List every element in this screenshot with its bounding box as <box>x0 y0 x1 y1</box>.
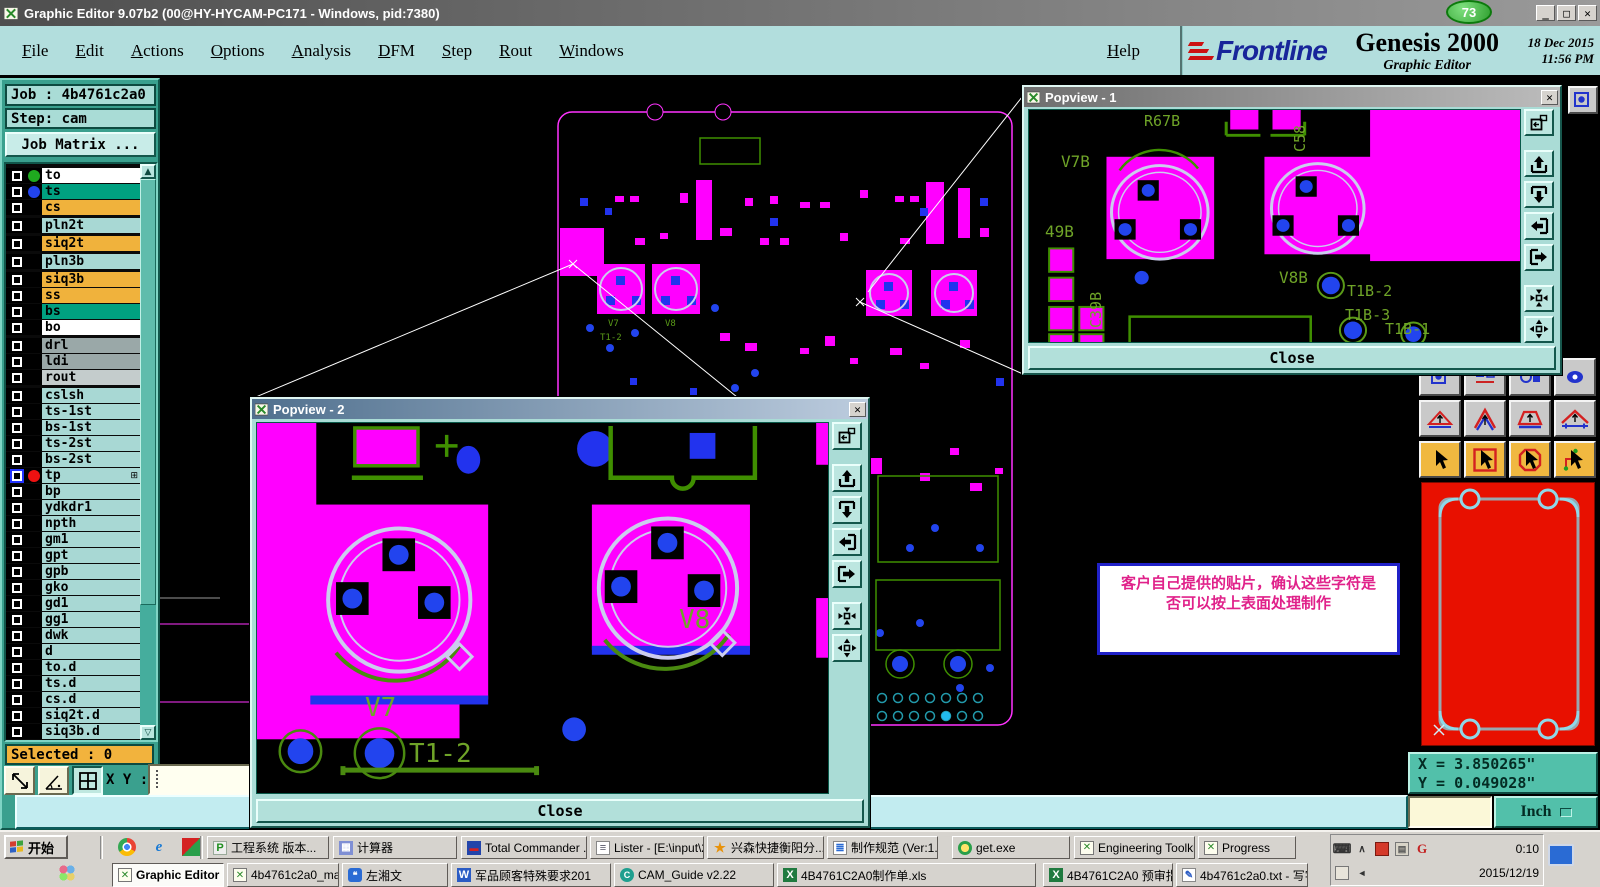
pan-down-icon[interactable] <box>832 496 862 524</box>
popview-1-title: Popview - 1 <box>1045 90 1536 105</box>
product-title: Genesis 2000 <box>1335 28 1520 58</box>
popview-1-canvas[interactable]: R67B C58 V7B 49B C39B V8B T1B-2 T1B-3 T1… <box>1028 109 1521 343</box>
layer-row[interactable]: ts <box>6 184 140 199</box>
layer-checkbox[interactable] <box>12 471 22 481</box>
layer-color-dot <box>28 470 40 482</box>
job-sidebar: Job : 4b4761c2a0 Step: cam Job Matrix ..… <box>0 78 160 830</box>
layer-checkbox[interactable] <box>12 391 22 401</box>
popview-icon <box>1027 92 1040 103</box>
tray-date: 2015/12/19 <box>1479 866 1539 880</box>
menubar: File Edit Actions Options Analysis DFM S… <box>0 26 1600 78</box>
layer-name[interactable]: tp⊞ <box>42 468 140 483</box>
customer-note: 客户自己提供的贴片，确认这些字符是 否可以按上表面处理制作 <box>1097 563 1400 655</box>
job-matrix-button[interactable]: Job Matrix ... <box>5 132 156 157</box>
layer-checkbox[interactable] <box>12 203 22 213</box>
layer-checkbox[interactable] <box>12 535 22 545</box>
task-graphic-editor[interactable]: Graphic Editor 9.07b2 <box>112 863 224 887</box>
task-word-doc[interactable]: 军品顾客特殊要求201 <box>451 863 611 887</box>
document-icon <box>596 841 610 855</box>
brand-panel: Frontline Genesis 2000 Graphic Editor 18… <box>1180 26 1600 75</box>
pan-left-icon[interactable] <box>832 528 862 556</box>
silk-label: V8 <box>679 605 710 635</box>
document-icon <box>833 841 847 855</box>
pan-right-icon[interactable] <box>832 560 862 588</box>
triangle-tool-3-icon[interactable] <box>1509 400 1551 437</box>
grid-tool-button[interactable] <box>72 766 103 795</box>
date-label: 18 Dec 2015 <box>1528 35 1594 51</box>
volume-icon[interactable] <box>1355 866 1369 880</box>
cursor-coordinates: X = 3.850265" Y = 0.049028" <box>1408 752 1598 794</box>
popview-1-close-button[interactable]: Close <box>1028 346 1556 370</box>
layer-row[interactable]: bs-2st <box>6 452 140 467</box>
layer-checkbox[interactable] <box>12 727 22 737</box>
menu-help[interactable]: Help <box>1107 41 1140 61</box>
start-button[interactable]: 开始 <box>4 835 68 859</box>
select-net-icon[interactable] <box>1554 441 1596 478</box>
quicklaunch-app-icon[interactable] <box>182 838 200 856</box>
layer-name[interactable]: ldi <box>42 354 140 369</box>
note-line-2: 否可以按上表面处理制作 <box>1100 594 1397 614</box>
task-lister[interactable]: Lister - [E:\input\2... <box>590 836 704 859</box>
layer-name[interactable]: to.d <box>42 660 140 675</box>
silk-label: 49B <box>1045 222 1074 241</box>
layer-name[interactable]: bs-1st <box>42 420 140 435</box>
menu-rout[interactable]: Rout <box>499 41 532 61</box>
layer-name[interactable]: cslsh <box>42 388 140 403</box>
layer-row[interactable]: rout <box>6 370 140 385</box>
pan-up-icon[interactable] <box>832 464 862 492</box>
popview-1-titlebar[interactable]: Popview - 1 ✕ <box>1024 87 1560 107</box>
tray-clock: 0:10 <box>1516 842 1539 856</box>
layer-row[interactable]: tp⊞ <box>6 468 140 483</box>
clipboard-icon[interactable] <box>1395 842 1409 856</box>
layer-checkbox[interactable] <box>12 341 22 351</box>
layer-checkbox[interactable] <box>12 599 22 609</box>
layer-name[interactable]: gm1 <box>42 532 140 547</box>
layer-row[interactable]: dwk <box>6 628 140 643</box>
units-button[interactable]: Inch <box>1494 796 1598 828</box>
layer-checkbox[interactable] <box>12 307 22 317</box>
note-line-1: 客户自己提供的贴片，确认这些字符是 <box>1100 574 1397 594</box>
layer-checkbox[interactable] <box>12 423 22 433</box>
svg-text:V8: V8 <box>665 319 676 329</box>
layer-row[interactable]: siq3b.d <box>6 724 140 739</box>
layer-checkbox[interactable] <box>12 503 22 513</box>
layer-row[interactable]: cs <box>6 200 140 215</box>
task-chat[interactable]: 左湘文 <box>342 863 448 887</box>
layer-checkbox[interactable] <box>12 171 22 181</box>
layer-checkbox[interactable] <box>12 407 22 417</box>
select-frame-icon[interactable] <box>1464 441 1506 478</box>
window-titlebar[interactable]: Graphic Editor 9.07b2 (00@HY-HYCAM-PC171… <box>0 0 1600 26</box>
task-cam-guide[interactable]: CAM_Guide v2.22 <box>614 863 774 887</box>
pan-down-icon[interactable] <box>1524 181 1554 208</box>
layer-row[interactable]: to <box>6 168 140 183</box>
layer-row[interactable]: d <box>6 644 140 659</box>
task-calculator[interactable]: 计算器 <box>333 836 457 859</box>
layer-row[interactable]: siq3b <box>6 272 140 287</box>
layer-row[interactable]: cslsh <box>6 388 140 403</box>
layer-row[interactable]: bs <box>6 304 140 319</box>
layer-row[interactable]: bs-1st <box>6 420 140 435</box>
layer-name[interactable]: ts <box>42 184 140 199</box>
layer-checkbox[interactable] <box>12 679 22 689</box>
layer-row[interactable]: drl <box>6 338 140 353</box>
silk-label: V7 <box>365 693 396 723</box>
layer-checkbox[interactable] <box>12 239 22 249</box>
task-excel-worksheet[interactable]: 4B4761C2A0制作单.xls <box>777 863 1036 887</box>
popview-2-artwork <box>257 423 828 793</box>
keyboard-icon[interactable] <box>1335 842 1349 856</box>
tray-g-icon[interactable] <box>1415 842 1429 856</box>
layer-name[interactable]: bp <box>42 484 140 499</box>
popview-2-title: Popview - 2 <box>273 402 844 417</box>
layer-name[interactable]: gd1 <box>42 596 140 611</box>
layer-name[interactable]: bs-2st <box>42 452 140 467</box>
text-caret <box>156 770 158 789</box>
layer-row[interactable]: ts-1st <box>6 404 140 419</box>
silk-label: R67B <box>1144 112 1180 130</box>
calculator-icon <box>339 841 353 855</box>
zoom-contract-icon[interactable] <box>832 602 862 630</box>
layer-name[interactable]: ts.d <box>42 676 140 691</box>
layer-row[interactable]: gpb <box>6 564 140 579</box>
app-icon <box>958 841 972 855</box>
layer-name[interactable]: gko <box>42 580 140 595</box>
popview-2-toolbar <box>832 422 864 794</box>
menu-options[interactable]: Options <box>211 41 265 61</box>
collapse-icon[interactable] <box>1355 842 1369 856</box>
layer-row[interactable]: gm1 <box>6 532 140 547</box>
popview-2-close-icon[interactable]: ✕ <box>849 402 866 417</box>
excel-icon <box>783 868 797 882</box>
app-icon <box>620 868 634 882</box>
select-polygon-icon[interactable] <box>1509 441 1551 478</box>
layer-name[interactable]: siq2t <box>42 236 140 251</box>
window-title: Graphic Editor 9.07b2 (00@HY-HYCAM-PC171… <box>24 6 440 21</box>
task-get-exe[interactable]: get.exe <box>952 836 1070 859</box>
layer-name[interactable]: rout <box>42 370 140 385</box>
scroll-thumb[interactable] <box>140 179 156 605</box>
triangle-tool-4-icon[interactable] <box>1554 400 1596 437</box>
layer-name[interactable]: siq3b.d <box>42 724 140 739</box>
minimize-button[interactable]: _ <box>1536 5 1555 21</box>
menu-windows[interactable]: Windows <box>559 41 624 61</box>
job-label: Job : 4b4761c2a0 <box>5 84 156 106</box>
layer-name[interactable]: bs <box>42 304 140 319</box>
layer-checkbox[interactable] <box>12 439 22 449</box>
maximize-button[interactable]: □ <box>1557 5 1576 21</box>
tray-window-icon[interactable] <box>1335 866 1349 880</box>
step-label: Step: cam <box>5 108 156 129</box>
xy-label: X Y : <box>106 772 148 788</box>
layer-color-dot <box>28 186 40 198</box>
task-total-commander[interactable]: Total Commander ... <box>461 836 587 859</box>
layer-name[interactable]: ts-1st <box>42 404 140 419</box>
menu-dfm[interactable]: DFM <box>378 41 415 61</box>
layer-row[interactable]: gpt <box>6 548 140 563</box>
chrome-icon[interactable] <box>118 838 136 856</box>
notification-badge: 73 <box>1446 0 1492 24</box>
layer-row[interactable]: cs.d <box>6 692 140 707</box>
popview-1-toolbar <box>1524 109 1556 343</box>
windows-flag-icon <box>10 840 24 854</box>
layer-name[interactable]: gg1 <box>42 612 140 627</box>
layer-checkbox[interactable] <box>12 711 22 721</box>
layer-checkbox[interactable] <box>12 221 22 231</box>
window-copy-icon[interactable] <box>832 422 862 450</box>
silk-label: C39B <box>1087 292 1105 328</box>
layer-checkbox[interactable] <box>12 357 22 367</box>
star-icon <box>713 841 727 855</box>
layer-name[interactable]: gpb <box>42 564 140 579</box>
layer-checkbox[interactable] <box>12 695 22 705</box>
layer-name[interactable]: gpt <box>42 548 140 563</box>
menu-items: File Edit Actions Options Analysis DFM S… <box>0 26 1107 75</box>
window-copy-icon[interactable] <box>1524 109 1554 136</box>
silk-label: T1B-2 <box>1347 282 1392 300</box>
scroll-up-icon[interactable]: ▲ <box>140 164 156 179</box>
layer-name[interactable]: ts-2st <box>42 436 140 451</box>
zoom-expand-icon[interactable] <box>1524 316 1554 343</box>
layer-checkbox[interactable] <box>12 567 22 577</box>
pan-up-icon[interactable] <box>1524 150 1554 177</box>
triangle-tool-2-icon[interactable] <box>1464 400 1506 437</box>
layer-row[interactable]: gko <box>6 580 140 595</box>
menu-file[interactable]: File <box>22 41 48 61</box>
layer-color-dot <box>28 170 40 182</box>
panel-window-icon[interactable] <box>1568 86 1598 114</box>
layer-name[interactable]: siq3b <box>42 272 140 287</box>
layer-checkbox[interactable] <box>12 519 22 529</box>
layer-panel: to ts cs pln2t siq2t pln3b siq3b ss <box>4 162 158 742</box>
word-icon <box>457 868 471 882</box>
app-icon <box>213 841 227 855</box>
layer-name[interactable]: d <box>42 644 140 659</box>
ie-icon[interactable] <box>150 838 168 856</box>
app-icon <box>233 868 247 882</box>
select-cursor-icon[interactable] <box>1419 441 1461 478</box>
measure-tool-button[interactable] <box>38 766 69 795</box>
tray-app-icon[interactable] <box>1375 842 1389 856</box>
profile-preview <box>1421 482 1595 746</box>
layer-checkbox[interactable] <box>12 631 22 641</box>
app-icon <box>1204 841 1218 855</box>
pan-right-icon[interactable] <box>1524 244 1554 271</box>
layer-checkbox[interactable] <box>12 647 22 657</box>
silk-label: T1-2 <box>409 739 472 769</box>
popview-1-close-icon[interactable]: ✕ <box>1541 90 1558 105</box>
product-subtitle: Graphic Editor <box>1335 58 1520 74</box>
menu-actions[interactable]: Actions <box>131 41 184 61</box>
layer-row[interactable]: siq2t.d <box>6 708 140 723</box>
silk-label: V7B <box>1061 152 1090 171</box>
layer-checkbox[interactable] <box>12 551 22 561</box>
task-spec-doc[interactable]: 制作规范 (Ver:1.... <box>827 836 938 859</box>
popview-2-titlebar[interactable]: Popview - 2 ✕ <box>252 399 868 419</box>
layer-name[interactable]: to <box>42 168 140 183</box>
layer-row[interactable]: ydkdr1 <box>6 500 140 515</box>
popview-1-window[interactable]: Popview - 1 ✕ <box>1022 85 1562 375</box>
triangle-tool-1-icon[interactable] <box>1419 400 1461 437</box>
layer-checkbox[interactable] <box>12 487 22 497</box>
silk-label: T1B-1 <box>1385 320 1430 338</box>
display-tray-icon[interactable] <box>1548 844 1574 866</box>
task-engineering-system[interactable]: 工程系统 版本... <box>207 836 329 859</box>
layer-checkbox[interactable] <box>12 373 22 383</box>
coord-y: Y = 0.049028" <box>1418 774 1596 793</box>
taskbar: 开始 工程系统 版本... 计算器 Total Commander ... Li… <box>0 830 1600 887</box>
layer-name[interactable]: dwk <box>42 628 140 643</box>
layer-row[interactable]: bp <box>6 484 140 499</box>
layer-name[interactable]: npth <box>42 516 140 531</box>
layer-row[interactable]: ldi <box>6 354 140 369</box>
menu-analysis[interactable]: Analysis <box>292 41 352 61</box>
app-icon <box>467 841 481 855</box>
layer-checkbox[interactable] <box>12 257 22 267</box>
layer-checkbox[interactable] <box>12 291 22 301</box>
layer-row[interactable]: pln3b <box>6 254 140 269</box>
close-button[interactable]: ✕ <box>1578 5 1597 21</box>
menu-step[interactable]: Step <box>442 41 472 61</box>
layer-row[interactable]: npth <box>6 516 140 531</box>
app-icon <box>1080 841 1094 855</box>
layer-row[interactable]: gd1 <box>6 596 140 611</box>
layer-row[interactable]: ss <box>6 288 140 303</box>
zoom-contract-icon[interactable] <box>1524 285 1554 312</box>
layer-row[interactable]: ts-2st <box>6 436 140 451</box>
layer-checkbox[interactable] <box>12 187 22 197</box>
pan-left-icon[interactable] <box>1524 212 1554 239</box>
layer-row[interactable]: gg1 <box>6 612 140 627</box>
layer-checkbox[interactable] <box>12 275 22 285</box>
units-dropdown-icon <box>1560 808 1572 817</box>
silk-label: C58 <box>1291 125 1309 152</box>
taskbar-separator <box>200 836 203 859</box>
task-main-window[interactable]: 4b4761c2a0_main_ga... <box>227 863 339 887</box>
layer-checkbox[interactable] <box>12 323 22 333</box>
popview-2-canvas[interactable]: V7 V8 T1-2 <box>256 422 829 794</box>
scroll-down-icon[interactable]: ▽ <box>140 725 156 740</box>
chat-icon <box>348 868 362 882</box>
popview-2-window[interactable]: Popview - 2 ✕ <box>250 397 870 828</box>
time-label: 11:56 PM <box>1528 51 1594 67</box>
layer-row[interactable]: to.d <box>6 660 140 675</box>
menu-edit[interactable]: Edit <box>75 41 103 61</box>
frontline-speedlines-icon <box>1189 42 1213 60</box>
layer-name[interactable]: drl <box>42 338 140 353</box>
popview-2-close-button[interactable]: Close <box>256 799 864 823</box>
layer-checkbox[interactable] <box>12 615 22 625</box>
layer-scrollbar[interactable]: ▲ ▽ <box>140 164 156 740</box>
layer-row[interactable]: siq2t <box>6 236 140 251</box>
task-wordpad[interactable]: 4b4761c2a0.txt - 写字板 <box>1176 863 1308 887</box>
layer-name[interactable]: bo <box>42 320 140 335</box>
coord-x: X = 3.850265" <box>1418 755 1596 774</box>
layer-list: to ts cs pln2t siq2t pln3b siq3b ss <box>6 164 140 740</box>
zoom-expand-icon[interactable] <box>832 634 862 662</box>
layer-name[interactable]: cs <box>42 200 140 215</box>
app-icon <box>118 868 132 882</box>
taskbar-separator <box>100 836 103 859</box>
resize-tool-button[interactable] <box>4 766 35 795</box>
quicklaunch-flower-icon[interactable] <box>58 864 76 882</box>
excel-icon <box>1049 868 1063 882</box>
layer-row[interactable]: ts.d <box>6 676 140 691</box>
layer-name[interactable]: siq2t.d <box>42 708 140 723</box>
layer-name[interactable]: pln3b <box>42 254 140 269</box>
layer-checkbox[interactable] <box>12 663 22 673</box>
selected-count: Selected : 0 <box>5 744 154 765</box>
layer-checkbox[interactable] <box>12 583 22 593</box>
profile-outline <box>1422 483 1594 745</box>
silk-label: V8B <box>1279 268 1308 287</box>
popview-icon <box>255 404 268 415</box>
layer-name[interactable]: cs.d <box>42 692 140 707</box>
svg-text:V7: V7 <box>608 319 619 329</box>
layer-name[interactable]: pln2t <box>42 218 140 233</box>
task-engineering-toolkit[interactable]: Engineering Toolki... <box>1074 836 1195 859</box>
units-label: Inch <box>1520 803 1551 821</box>
layer-row[interactable]: pln2t <box>6 218 140 233</box>
status-field <box>1408 796 1492 828</box>
frontline-logo: Frontline <box>1189 35 1327 67</box>
layer-name[interactable]: ss <box>42 288 140 303</box>
screen: { "window": { "title": "Graphic Editor 9… <box>0 0 1600 887</box>
layer-name[interactable]: ydkdr1 <box>42 500 140 515</box>
task-xingsen[interactable]: 兴森快捷衡阳分... <box>707 836 824 859</box>
layer-row[interactable]: bo <box>6 320 140 335</box>
system-tray: 0:10 2015/12/19 <box>1330 834 1544 886</box>
app-icon <box>4 6 18 20</box>
task-progress[interactable]: Progress <box>1198 836 1296 859</box>
silk-label: T1B-3 <box>1345 306 1390 324</box>
svg-text:T1-2: T1-2 <box>600 333 622 343</box>
task-excel-review[interactable]: 4B4761C2A0 预审指示 <box>1043 863 1173 887</box>
layer-checkbox[interactable] <box>12 455 22 465</box>
command-strip-right <box>784 795 1408 829</box>
wordpad-icon <box>1182 868 1196 882</box>
